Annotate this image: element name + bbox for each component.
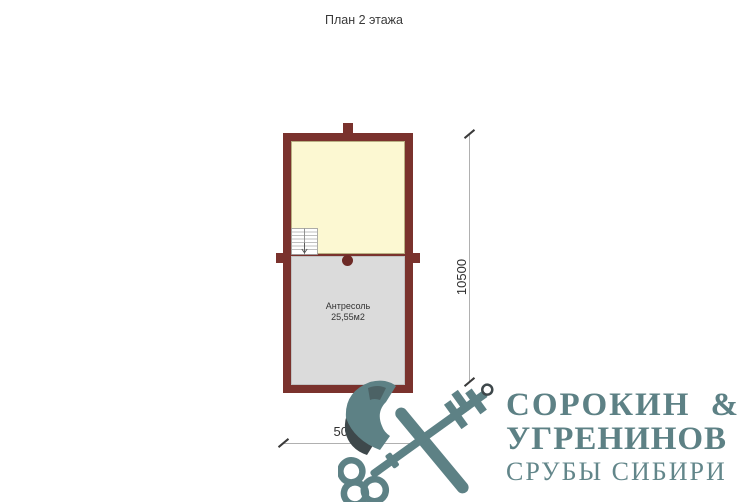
dimension-line-vertical [469,135,470,383]
logo-line-1: СОРОКИН & [506,388,751,422]
room-area: 25,55м2 [291,312,405,323]
room-label: Антресоль 25,55м2 [291,301,405,323]
company-logo-text: СОРОКИН & УГРЕНИНОВ СРУБЫ СИБИРИ [506,388,751,487]
column-post [342,255,353,266]
logo-line-2: УГРЕНИНОВ [506,422,751,457]
dimension-height-label: 10500 [454,246,468,308]
axe-icon [346,381,471,496]
room-name: Антресоль [291,301,405,312]
crossed-axe-and-key-icon [338,370,514,502]
floorplan-page: План 2 этажа Антресоль 25,55м2 10500 [0,0,753,502]
page-title: План 2 этажа [283,13,445,27]
staircase-icon [291,228,318,255]
logo-line-3: СРУБЫ СИБИРИ [506,457,751,487]
